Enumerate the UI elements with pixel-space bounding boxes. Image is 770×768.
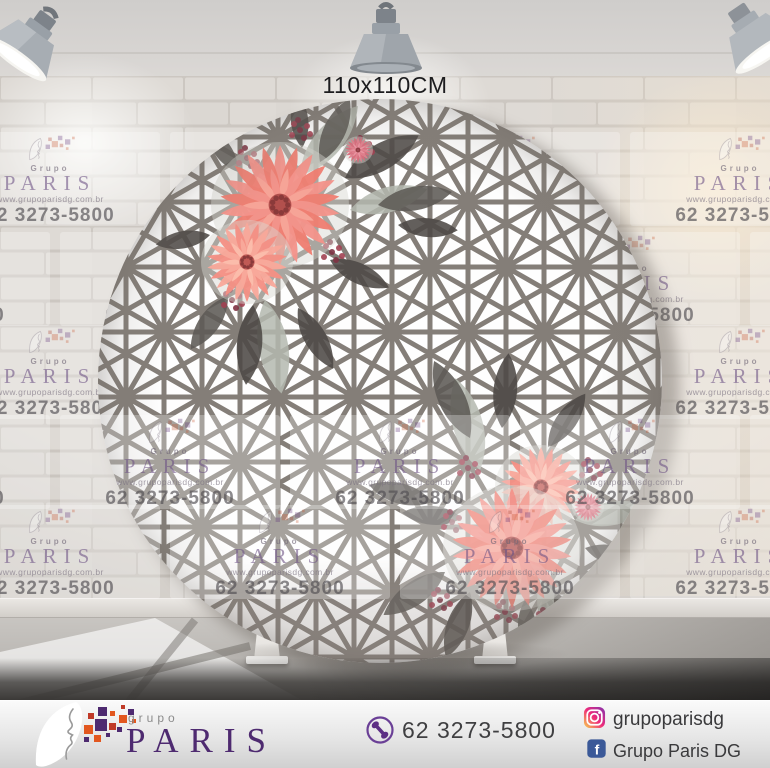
round-backdrop-panel xyxy=(96,97,664,665)
footer-bar: grupo PARIS 62 3273-5800 xyxy=(0,700,770,768)
backdrop-edge-shading xyxy=(98,99,662,663)
footer-brand-text: PARIS xyxy=(126,722,277,760)
phone-icon xyxy=(364,714,396,746)
facebook-icon: f xyxy=(586,738,607,759)
footer-instagram-handle: grupoparisdg xyxy=(613,709,724,731)
instagram-icon xyxy=(583,706,606,729)
footer-facebook-name: Grupo Paris DG xyxy=(613,741,741,762)
svg-text:f: f xyxy=(595,742,600,758)
footer-phone-text: 62 3273-5800 xyxy=(402,717,556,744)
spotlight-icon-left xyxy=(0,4,154,108)
spotlight-icon-center xyxy=(336,0,436,78)
photo-bottom-shadow-band-right xyxy=(300,658,770,702)
spotlight-icon-right xyxy=(688,2,770,98)
scene: Grupo PARIS www.grupoparisdg.com.br 62 3… xyxy=(0,0,770,768)
